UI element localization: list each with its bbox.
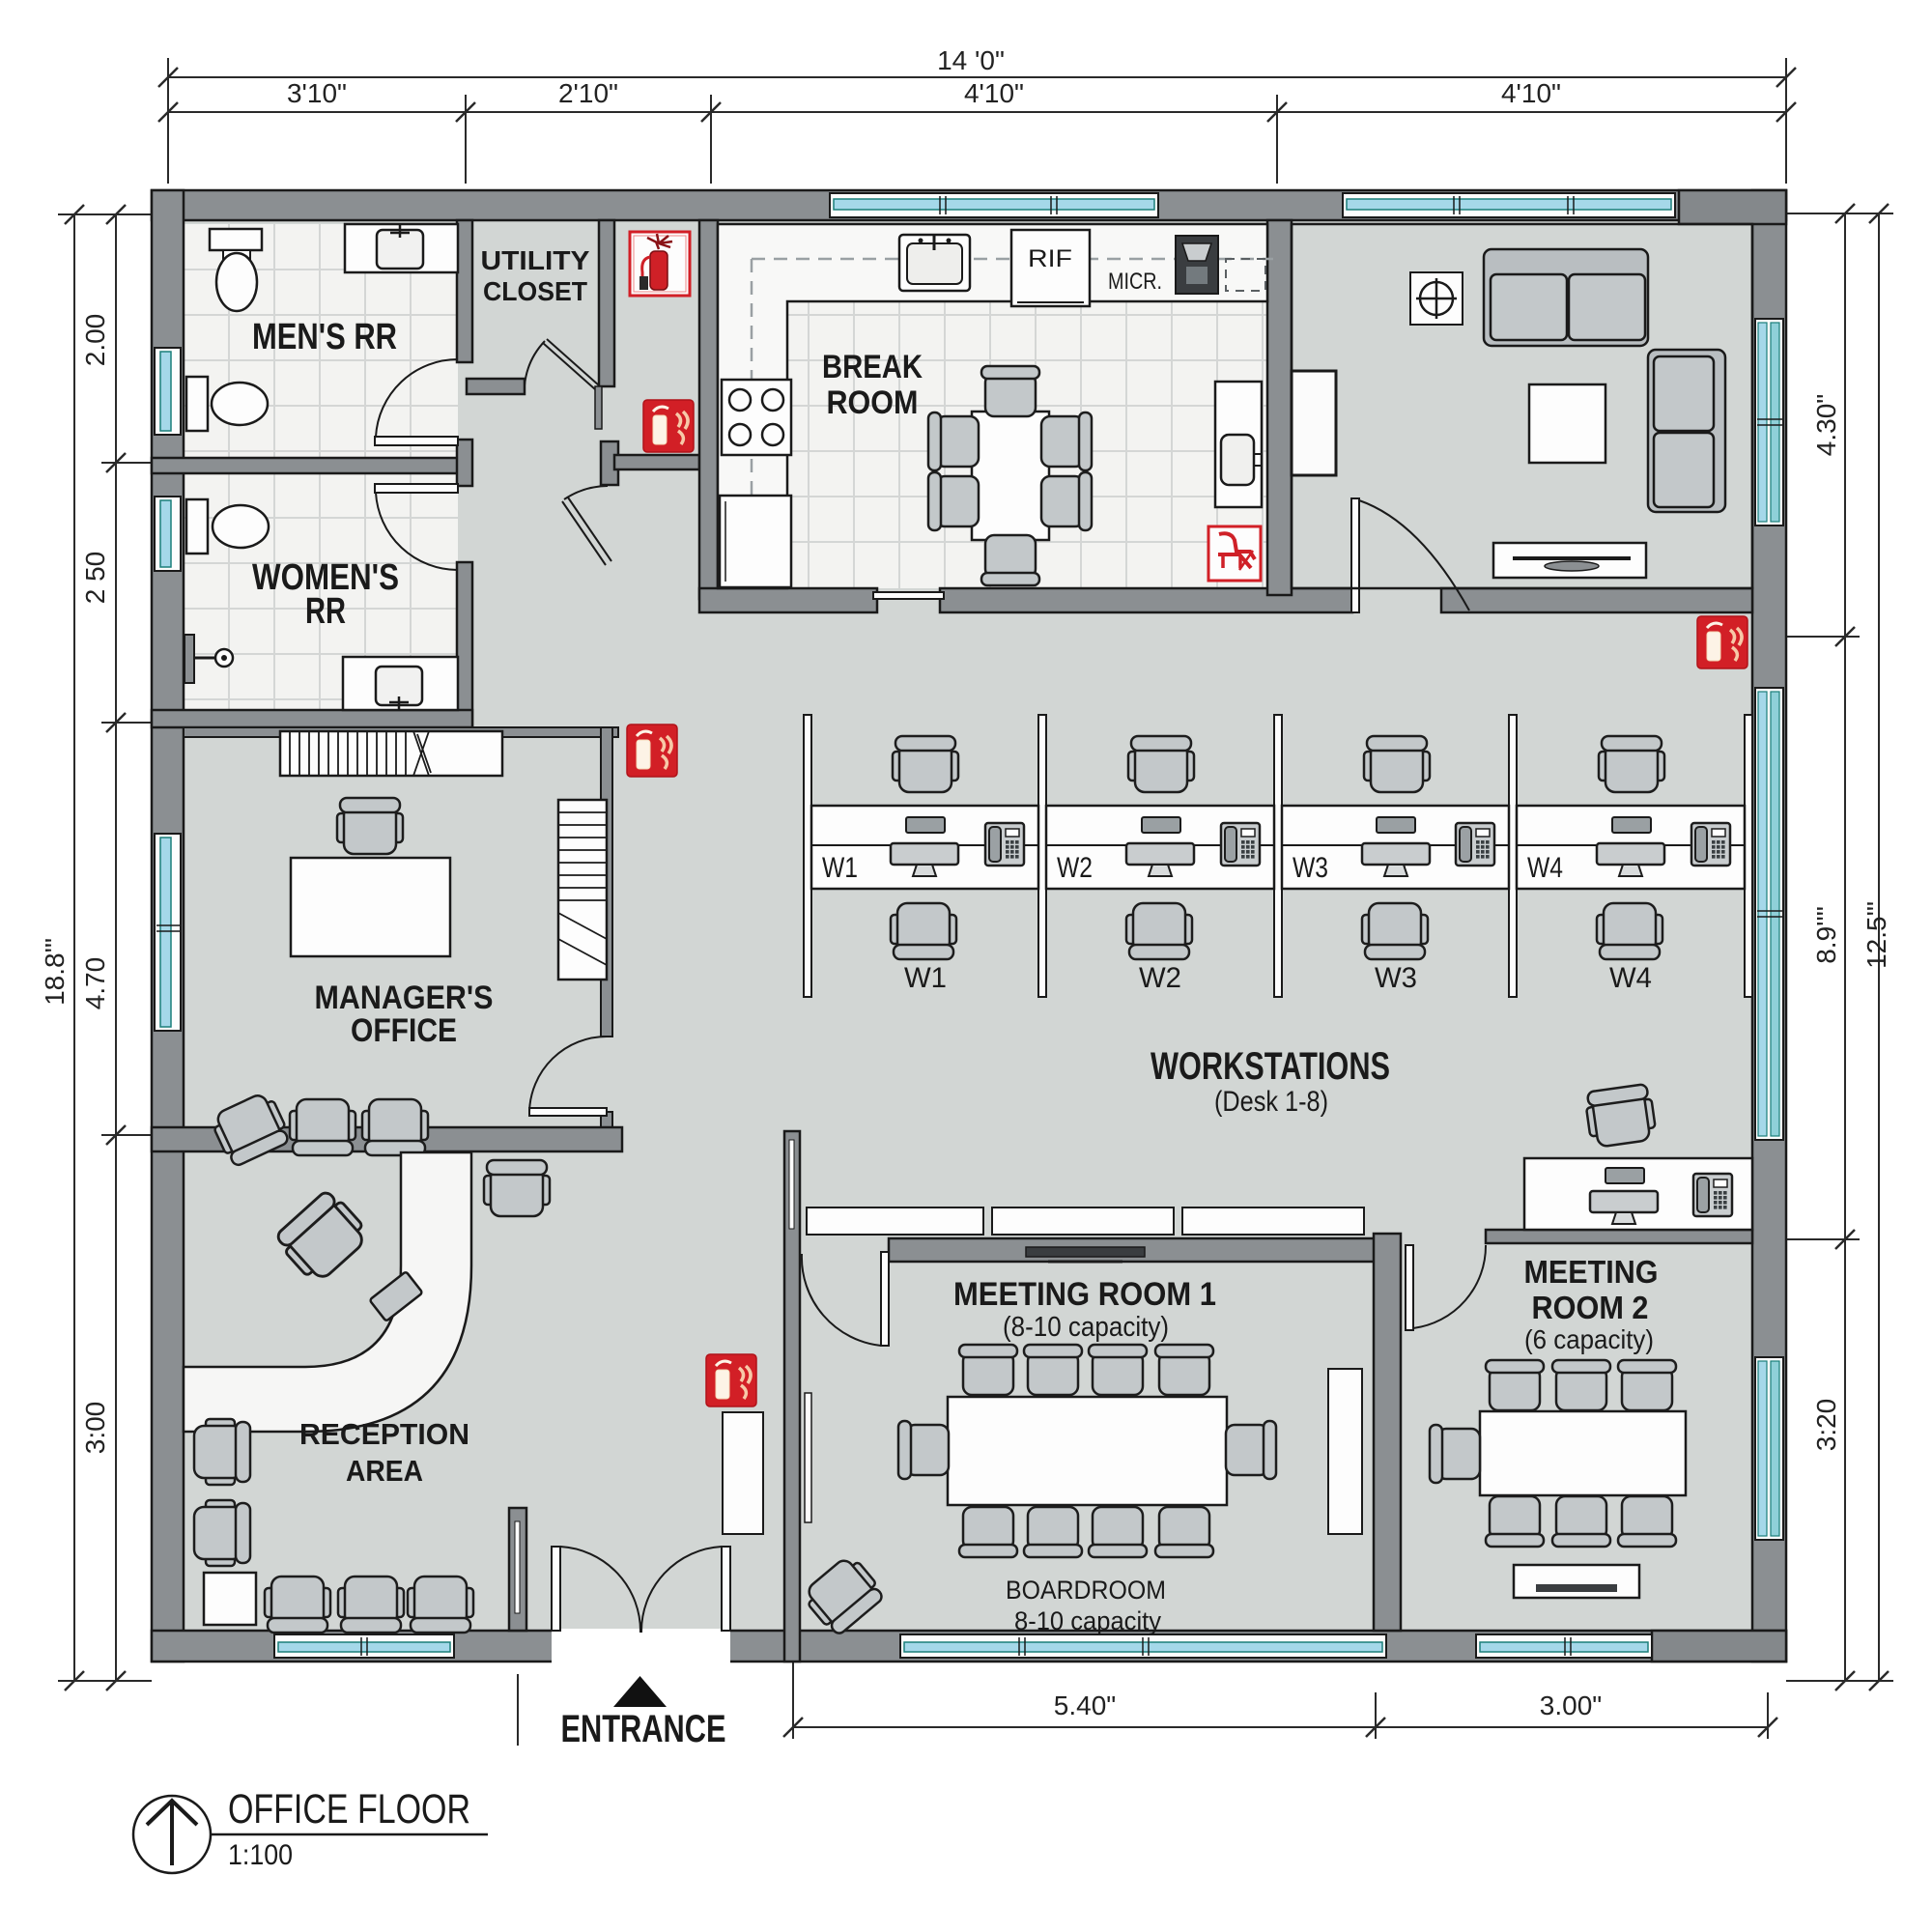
svg-text:4.70: 4.70 [80,957,110,1010]
svg-text:MEN'S RR: MEN'S RR [252,317,397,357]
svg-text:W2: W2 [1139,962,1181,994]
svg-text:MEETING: MEETING [1524,1254,1659,1290]
svg-text:AREA: AREA [346,1454,423,1488]
svg-text:RIF: RIF [1028,245,1072,272]
svg-text:3:00: 3:00 [80,1402,110,1455]
svg-text:(6 capacity): (6 capacity) [1524,1324,1654,1354]
svg-text:W3: W3 [1375,962,1417,994]
svg-text:ROOM 2: ROOM 2 [1532,1290,1649,1325]
svg-text:2.00: 2.00 [80,314,110,367]
svg-text:(Desk 1-8): (Desk 1-8) [1214,1086,1328,1118]
svg-text:MANAGER'S: MANAGER'S [315,980,494,1016]
svg-text:OFFICE FLOOR: OFFICE FLOOR [228,1786,470,1833]
svg-text:14 '0": 14 '0" [937,45,1005,75]
svg-text:ENTRANCE: ENTRANCE [561,1708,726,1750]
svg-text:CLOSET: CLOSET [483,276,587,306]
svg-text:8.9''": 8.9''" [1811,906,1841,964]
svg-text:RECEPTION: RECEPTION [299,1417,469,1451]
svg-text:W3: W3 [1293,852,1328,884]
svg-text:2'10": 2'10" [558,78,618,108]
svg-text:3.00": 3.00" [1540,1690,1602,1720]
svg-text:MEETING ROOM 1: MEETING ROOM 1 [953,1276,1216,1313]
svg-text:1:100: 1:100 [228,1839,293,1871]
svg-text:5.40": 5.40" [1054,1690,1116,1720]
svg-text:(8-10 capacity): (8-10 capacity) [1003,1312,1169,1343]
svg-text:18.8'": 18.8'" [40,938,70,1006]
svg-text:BOARDROOM: BOARDROOM [1006,1576,1166,1605]
svg-text:W1: W1 [822,852,858,884]
svg-text:W1: W1 [904,962,947,994]
svg-text:4'10": 4'10" [1501,78,1561,108]
svg-text:W4: W4 [1527,852,1563,884]
svg-text:ROOM: ROOM [827,384,919,421]
svg-text:3:20: 3:20 [1811,1399,1841,1452]
svg-text:4.30": 4.30" [1811,394,1841,456]
svg-text:RR: RR [305,591,346,632]
svg-text:3'10": 3'10" [287,78,347,108]
svg-text:2 50: 2 50 [80,552,110,605]
svg-text:MICR.: MICR. [1108,269,1162,295]
svg-text:12.5'": 12.5'" [1861,901,1891,969]
svg-text:W2: W2 [1057,852,1093,884]
svg-text:4'10": 4'10" [964,78,1024,108]
svg-text:8-10 capacity: 8-10 capacity [1014,1606,1161,1635]
svg-text:OFFICE: OFFICE [351,1012,457,1049]
svg-text:UTILITY: UTILITY [481,245,590,275]
svg-text:WORKSTATIONS: WORKSTATIONS [1151,1045,1390,1088]
svg-text:W4: W4 [1609,962,1652,994]
svg-text:BREAK: BREAK [822,349,923,385]
